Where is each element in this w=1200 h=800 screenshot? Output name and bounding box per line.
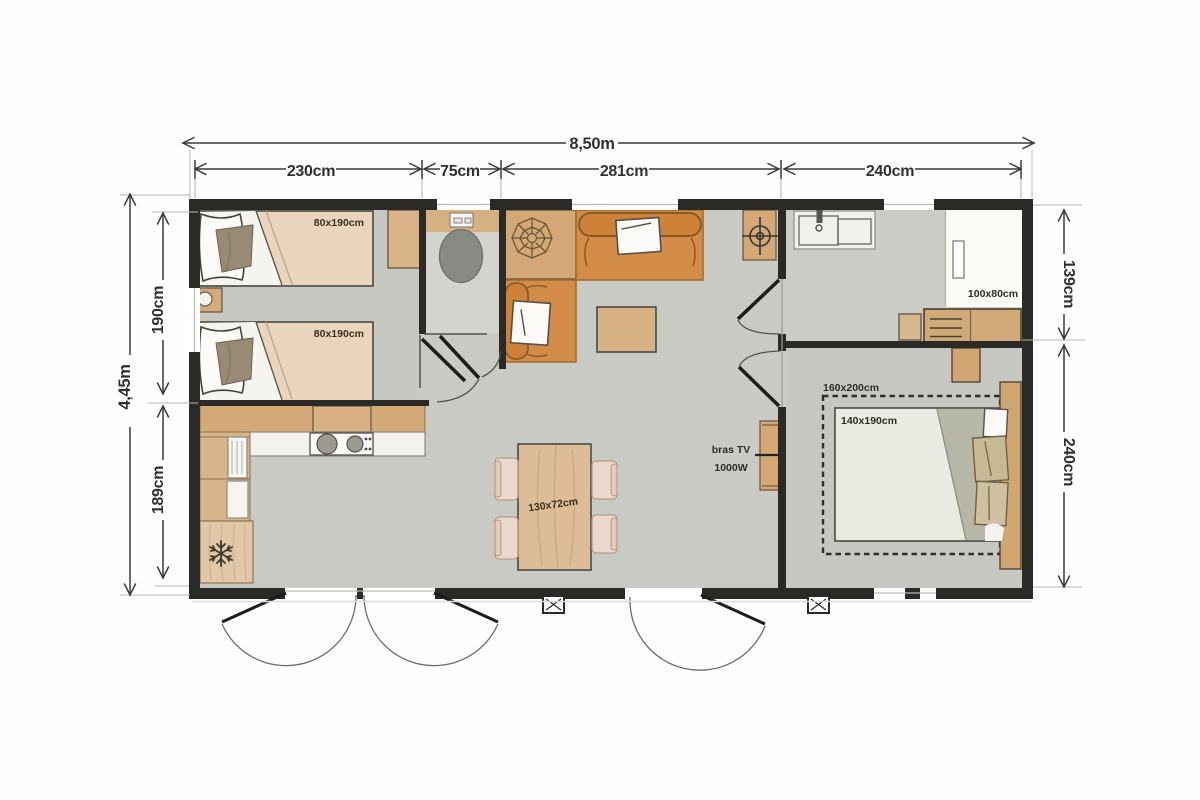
svg-text:100x80cm: 100x80cm [968,288,1018,300]
svg-text:240cm: 240cm [866,163,914,180]
svg-text:160x200cm: 160x200cm [823,382,879,394]
svg-text:230cm: 230cm [287,163,335,180]
svg-text:190cm: 190cm [150,286,167,334]
svg-text:8,50m: 8,50m [569,135,614,153]
svg-text:140x190cm: 140x190cm [841,415,897,427]
svg-text:281cm: 281cm [600,163,648,180]
svg-text:4,45m: 4,45m [116,364,134,409]
svg-text:139cm: 139cm [1060,260,1077,308]
svg-text:1000W: 1000W [714,462,747,474]
svg-text:240cm: 240cm [1060,438,1077,486]
svg-text:bras TV: bras TV [712,444,751,456]
svg-text:75cm: 75cm [440,163,480,180]
svg-text:80x190cm: 80x190cm [314,217,364,229]
svg-text:189cm: 189cm [150,466,167,514]
svg-text:80x190cm: 80x190cm [314,328,364,340]
